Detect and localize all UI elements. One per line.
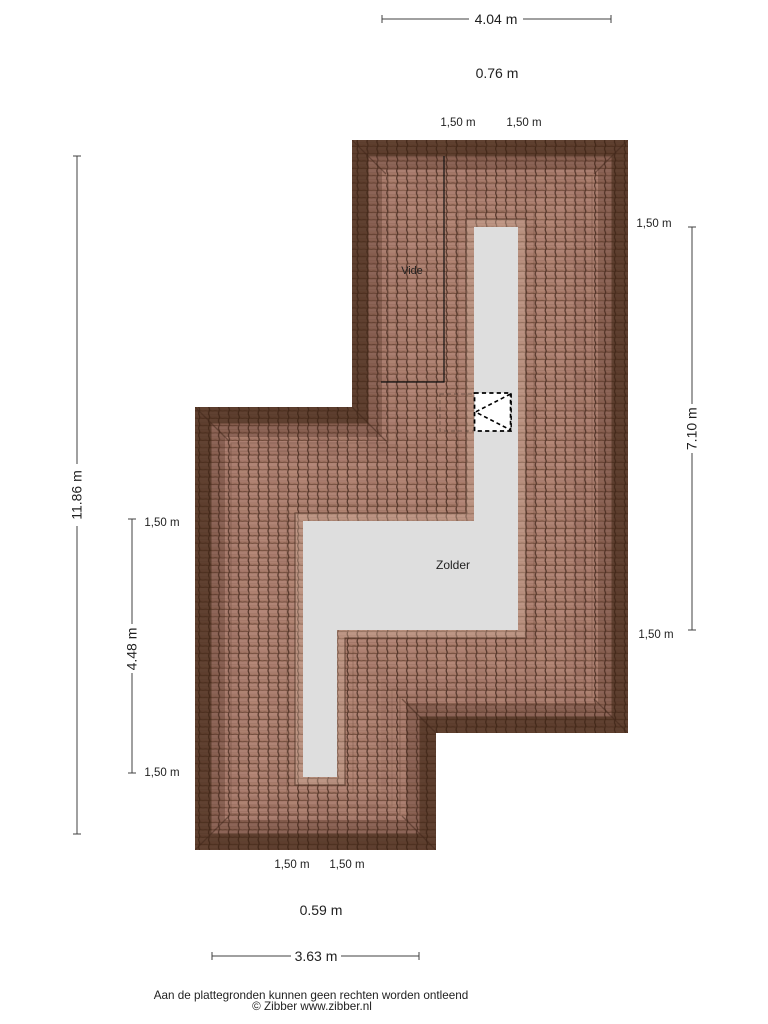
svg-text:0.59 m: 0.59 m [300, 902, 343, 918]
svg-text:Vide: Vide [401, 265, 422, 277]
svg-text:4.48 m: 4.48 m [124, 628, 140, 671]
svg-text:1,50 m: 1,50 m [440, 117, 475, 129]
svg-text:1,50 m: 1,50 m [274, 859, 309, 871]
svg-text:1,50 m: 1,50 m [144, 517, 179, 529]
svg-text:© Zibber www.zibber.nl: © Zibber www.zibber.nl [252, 1000, 372, 1013]
svg-text:11.86 m: 11.86 m [69, 470, 85, 520]
svg-text:4.04 m: 4.04 m [475, 11, 518, 27]
svg-text:3.63 m: 3.63 m [295, 948, 338, 964]
svg-text:Zolder: Zolder [436, 558, 470, 572]
svg-text:7.10 m: 7.10 m [684, 407, 700, 450]
svg-text:1,50 m: 1,50 m [144, 767, 179, 779]
svg-text:0.76 m: 0.76 m [476, 65, 519, 81]
svg-text:1,50 m: 1,50 m [638, 629, 673, 641]
svg-text:1,50 m: 1,50 m [506, 117, 541, 129]
svg-text:1,50 m: 1,50 m [636, 218, 671, 230]
svg-text:1,50 m: 1,50 m [329, 859, 364, 871]
